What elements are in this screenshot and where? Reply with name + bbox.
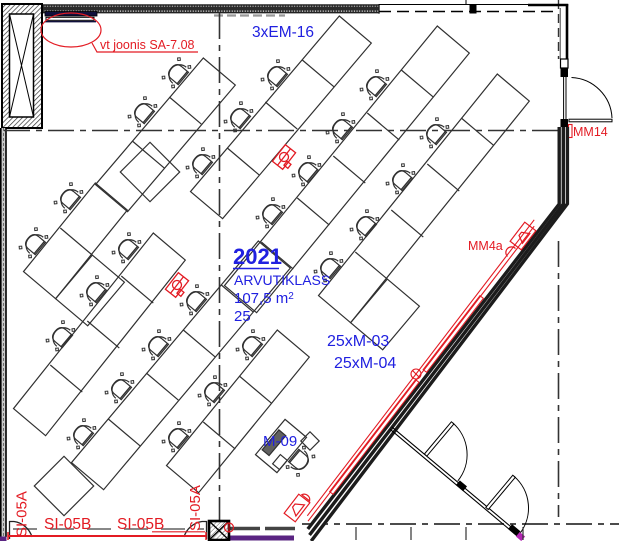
svg-text:SI-05A: SI-05A: [14, 491, 31, 537]
svg-text:25xM-03: 25xM-03: [327, 333, 389, 350]
svg-text:25xM-04: 25xM-04: [334, 355, 396, 372]
svg-text:25: 25: [234, 308, 251, 325]
svg-text:ARVUTIKLASS: ARVUTIKLASS: [234, 272, 330, 288]
svg-text:3xEM-16: 3xEM-16: [252, 24, 314, 41]
svg-text:SI-05B: SI-05B: [44, 516, 91, 533]
svg-text:SI-05B: SI-05B: [117, 516, 164, 533]
svg-text:2021: 2021: [233, 244, 282, 269]
svg-text:MM4a: MM4a: [468, 239, 503, 253]
svg-text:M-09: M-09: [263, 433, 297, 450]
svg-text:MM14: MM14: [573, 125, 608, 139]
svg-text:SI-05A: SI-05A: [187, 485, 204, 531]
svg-text:107,5 m2: 107,5 m2: [234, 290, 294, 307]
svg-text:vt joonis SA-7.08: vt joonis SA-7.08: [100, 38, 195, 52]
